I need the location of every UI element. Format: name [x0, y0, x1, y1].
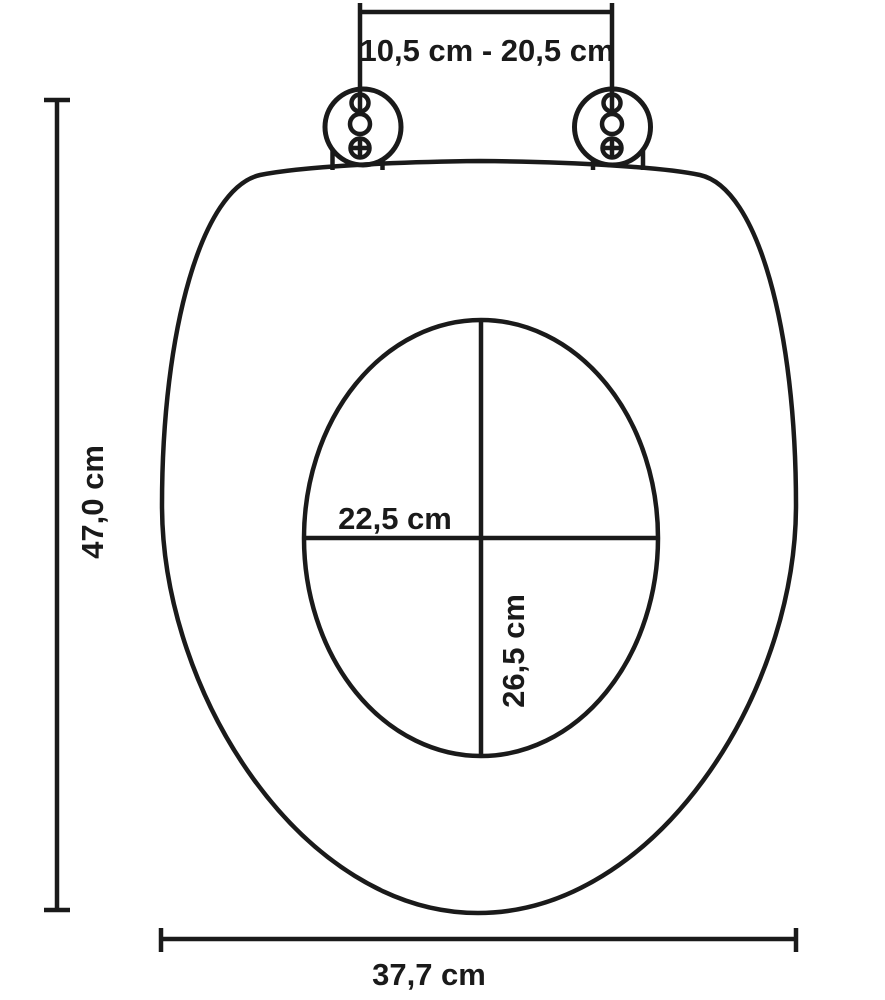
- right-hinge-hole-middle-icon: [602, 114, 622, 134]
- left-hinge-body: [325, 89, 401, 165]
- left-hinge-screw-cross-icon: [351, 139, 370, 158]
- left-hinge: [325, 89, 401, 170]
- inner-length-label: 26,5 cm: [496, 594, 531, 708]
- dimension-diagram: 10,5 cm - 20,5 cm 47,0 cm 22,5 cm 26,5 c…: [0, 0, 885, 1000]
- total-width-dimension: 37,7 cm: [161, 928, 796, 992]
- total-width-label: 37,7 cm: [372, 957, 486, 992]
- right-hinge-screw-cross-icon: [603, 139, 622, 158]
- total-length-label: 47,0 cm: [75, 445, 110, 559]
- hinge-distance-label: 10,5 cm - 20,5 cm: [359, 33, 614, 68]
- left-hinge-hole-middle-icon: [350, 114, 370, 134]
- total-length-dimension: 47,0 cm: [44, 100, 110, 910]
- hinge-distance-dimension: 10,5 cm - 20,5 cm: [359, 3, 614, 114]
- toilet-seat-diagram: 10,5 cm - 20,5 cm 47,0 cm 22,5 cm 26,5 c…: [0, 0, 885, 1000]
- inner-width-label: 22,5 cm: [338, 501, 452, 536]
